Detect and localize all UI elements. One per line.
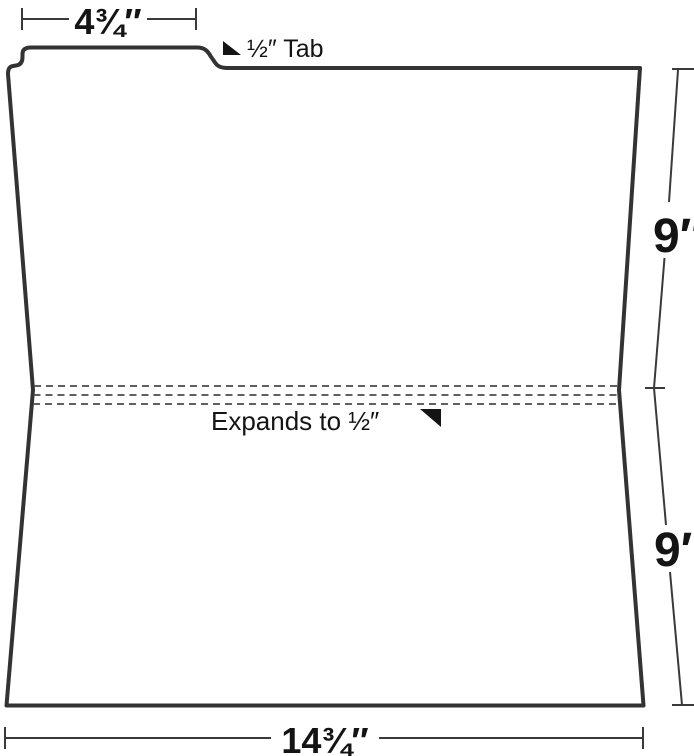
dimension-line xyxy=(670,572,682,705)
height-dimension: 9″ 9″ xyxy=(645,69,694,705)
bottom-width-label: 14¾″ xyxy=(281,720,368,756)
folder-outline xyxy=(7,48,644,706)
dimension-line xyxy=(669,70,678,202)
expansion-label: Expands to ½″ xyxy=(211,406,379,436)
bottom-width-dimension: 14¾″ xyxy=(5,720,643,756)
dimension-line xyxy=(654,258,665,388)
folder-dimension-diagram: 4¾″ ½″ Tab 9″ 9″ Expands to ½″ xyxy=(0,0,694,756)
tab-pointer-icon xyxy=(223,41,241,55)
diagram-canvas: 4¾″ ½″ Tab 9″ 9″ Expands to ½″ xyxy=(0,0,694,756)
tab-width-label: 4¾″ xyxy=(74,1,141,42)
lower-height-label: 9″ xyxy=(654,524,694,577)
upper-height-label: 9″ xyxy=(653,210,694,263)
tab-width-dimension: 4¾″ xyxy=(22,1,196,42)
tab-callout: ½″ Tab xyxy=(223,35,324,63)
tab-label: ½″ Tab xyxy=(247,35,324,63)
dimension-line xyxy=(654,388,666,525)
